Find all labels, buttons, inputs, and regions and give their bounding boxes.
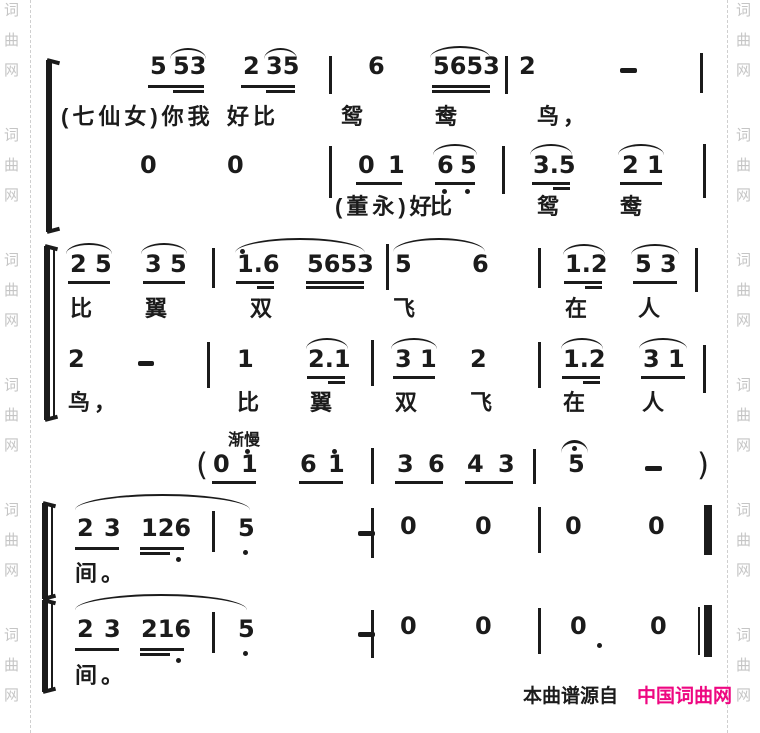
system-brace xyxy=(42,503,48,599)
watermark-divider-left xyxy=(30,0,31,733)
jianpu-note: 3 xyxy=(498,452,515,476)
jianpu-note: 0 xyxy=(475,614,492,638)
watermark-char: 曲 xyxy=(4,158,19,173)
jianpu-note: 1.2 xyxy=(565,252,608,276)
jianpu-note: 1 xyxy=(388,153,405,177)
lyric: (七仙女)你我 xyxy=(61,105,214,129)
jianpu-note: 3 xyxy=(104,617,121,641)
beam-underline xyxy=(432,90,490,93)
final-barline xyxy=(704,605,712,657)
barline xyxy=(538,248,541,288)
barline xyxy=(212,511,215,552)
jianpu-note: 2 xyxy=(519,54,536,78)
jianpu-note: 0 xyxy=(400,514,417,538)
beam-underline xyxy=(140,547,184,550)
barline xyxy=(51,602,53,690)
jianpu-note: 1 xyxy=(420,347,437,371)
jianpu-note: 0 xyxy=(227,153,244,177)
watermark-char: 词 xyxy=(4,378,19,393)
slur xyxy=(393,238,485,252)
jianpu-note: 5 xyxy=(460,153,477,177)
jianpu-note: 2 xyxy=(68,347,85,371)
watermark-char: 词 xyxy=(736,253,751,268)
beam-underline xyxy=(236,281,274,284)
jianpu-note: 216 xyxy=(141,617,191,641)
slur xyxy=(306,338,348,349)
watermark-char: 词 xyxy=(736,128,751,143)
beam-underline xyxy=(620,182,662,185)
jianpu-note: 6 xyxy=(428,452,445,476)
octave-dot xyxy=(465,189,470,194)
jianpu-note: 3.5 xyxy=(533,153,576,177)
lyric: 在 xyxy=(565,297,591,321)
slur xyxy=(631,244,679,255)
octave-dot xyxy=(332,449,337,454)
watermark-char: 网 xyxy=(4,563,19,578)
jianpu-note: 0 xyxy=(648,514,665,538)
beam-underline xyxy=(173,90,204,93)
beam-underline xyxy=(562,376,600,379)
watermark-char: 网 xyxy=(736,438,751,453)
watermark-char: 曲 xyxy=(736,33,751,48)
beam-underline xyxy=(553,187,570,190)
watermark-divider-right xyxy=(727,0,728,733)
barline xyxy=(51,505,53,597)
jianpu-note: 1 xyxy=(328,452,345,476)
barline xyxy=(371,340,374,386)
jianpu-note: 3 xyxy=(145,252,162,276)
octave-dot xyxy=(243,550,248,555)
jianpu-note: 6 xyxy=(368,54,385,78)
jianpu-note: 5 xyxy=(568,452,585,476)
jianpu-note: 1.2 xyxy=(563,347,606,371)
barline xyxy=(695,248,698,292)
jianpu-note: 5 xyxy=(238,617,255,641)
slur xyxy=(433,144,477,155)
beam-underline xyxy=(266,90,295,93)
slur xyxy=(264,48,297,59)
jianpu-note: 6 xyxy=(437,153,454,177)
slur xyxy=(75,594,247,610)
watermark-char: 网 xyxy=(736,63,751,78)
watermark-char: 网 xyxy=(4,188,19,203)
dash-note xyxy=(138,361,154,366)
jianpu-note: 0 xyxy=(570,614,587,638)
jianpu-note: 2 xyxy=(243,54,260,78)
jianpu-note: 6 xyxy=(472,252,489,276)
barline xyxy=(212,612,215,653)
lyric: 鸳 xyxy=(341,105,367,129)
beam-underline xyxy=(212,481,256,484)
lyric: 比 xyxy=(70,297,96,321)
slur xyxy=(563,244,605,255)
jianpu-note: 5 xyxy=(150,54,167,78)
jianpu-note: 1.6 xyxy=(237,252,280,276)
jianpu-note: 1 xyxy=(237,347,254,371)
system-brace xyxy=(44,246,50,420)
watermark-char: 曲 xyxy=(4,33,19,48)
beam-underline xyxy=(641,376,685,379)
slur xyxy=(170,48,206,59)
jianpu-note: 0 xyxy=(650,614,667,638)
beam-underline xyxy=(356,182,402,185)
barline xyxy=(371,448,374,484)
octave-dot xyxy=(597,643,602,648)
slur xyxy=(235,238,365,253)
jianpu-note: 1 xyxy=(241,452,258,476)
lyric: 鸟， xyxy=(537,105,589,129)
beam-underline xyxy=(75,648,119,651)
slur xyxy=(530,144,572,155)
beam-underline xyxy=(306,281,364,284)
jianpu-note: 0 xyxy=(400,614,417,638)
watermark-char: 网 xyxy=(736,313,751,328)
lyric: 翼 xyxy=(310,391,336,415)
watermark-char: 网 xyxy=(736,688,751,703)
beam-underline xyxy=(564,281,602,284)
slur xyxy=(66,243,112,254)
jianpu-note: 0 xyxy=(140,153,157,177)
watermark-char: 词 xyxy=(4,503,19,518)
beam-underline xyxy=(583,381,600,384)
watermark-char: 网 xyxy=(736,188,751,203)
jianpu-note: 0 xyxy=(565,514,582,538)
watermark-char: 曲 xyxy=(4,408,19,423)
watermark-char: 词 xyxy=(4,3,19,18)
jianpu-note: 4 xyxy=(467,452,484,476)
octave-dot xyxy=(245,449,250,454)
beam-underline xyxy=(140,653,170,656)
parenthesis: ( xyxy=(196,450,208,481)
parenthesis: ) xyxy=(697,450,709,481)
slur xyxy=(391,338,437,349)
barline xyxy=(538,507,541,553)
jianpu-note: 3 xyxy=(397,452,414,476)
system-brace xyxy=(46,60,52,232)
beam-underline xyxy=(143,281,185,284)
lyric: 在 xyxy=(563,391,589,415)
beam-underline xyxy=(68,281,110,284)
watermark-char: 曲 xyxy=(736,533,751,548)
dash-note xyxy=(620,68,637,73)
barline xyxy=(53,248,55,418)
watermark-char: 网 xyxy=(4,313,19,328)
watermark-char: 词 xyxy=(4,628,19,643)
lyric: 间。 xyxy=(75,562,127,586)
beam-underline xyxy=(532,182,570,185)
beam-underline xyxy=(328,381,345,384)
jianpu-note: 2 xyxy=(77,617,94,641)
jianpu-note: 2 xyxy=(470,347,487,371)
barline xyxy=(329,56,332,94)
barline xyxy=(703,144,706,198)
barline xyxy=(700,53,703,93)
jianpu-note: 2.1 xyxy=(308,347,351,371)
credit-text: 本曲谱源自 xyxy=(523,686,618,709)
lyric: 鸯 xyxy=(620,195,646,219)
jianpu-note: 2 xyxy=(622,153,639,177)
barline xyxy=(538,342,541,388)
barline xyxy=(212,248,215,288)
slur xyxy=(430,46,490,58)
watermark-char: 曲 xyxy=(736,158,751,173)
octave-dot xyxy=(176,557,181,562)
watermark-char: 曲 xyxy=(4,283,19,298)
slur xyxy=(618,144,664,155)
beam-underline xyxy=(633,281,677,284)
octave-dot xyxy=(176,658,181,663)
beam-underline xyxy=(140,552,170,555)
watermark-char: 词 xyxy=(736,628,751,643)
barline xyxy=(329,146,332,198)
jianpu-note: 2 xyxy=(77,516,94,540)
watermark-char: 曲 xyxy=(736,408,751,423)
watermark-char: 词 xyxy=(4,128,19,143)
beam-underline xyxy=(299,481,343,484)
jianpu-note: 1 xyxy=(647,153,664,177)
jianpu-note: 1 xyxy=(668,347,685,371)
barline xyxy=(371,508,374,558)
jianpu-note: 6 xyxy=(300,452,317,476)
watermark-char: 网 xyxy=(4,688,19,703)
lyric: 比 xyxy=(430,195,456,219)
barline xyxy=(538,608,541,654)
jianpu-note: 3 xyxy=(104,516,121,540)
barline xyxy=(703,345,706,393)
watermark-char: 曲 xyxy=(736,283,751,298)
beam-underline xyxy=(257,286,274,289)
tempo-label: 渐慢 xyxy=(228,433,260,449)
watermark-char: 词 xyxy=(736,3,751,18)
lyric: 双 xyxy=(250,297,276,321)
barline xyxy=(505,56,508,94)
beam-underline xyxy=(395,481,443,484)
beam-underline xyxy=(241,85,295,88)
lyric: 双 xyxy=(395,391,421,415)
beam-underline xyxy=(393,376,435,379)
lyric: 飞 xyxy=(393,297,419,321)
watermark-char: 词 xyxy=(736,503,751,518)
lyric: (董永)好 xyxy=(335,195,436,219)
lyric: 鸟， xyxy=(68,391,120,415)
beam-underline xyxy=(585,286,602,289)
final-barline xyxy=(704,505,712,555)
beam-underline xyxy=(148,85,204,88)
jianpu-note: 0 xyxy=(358,153,375,177)
jianpu-note: 5 xyxy=(238,516,255,540)
lyric: 人 xyxy=(638,297,664,321)
barline xyxy=(533,449,536,484)
beam-underline xyxy=(465,481,513,484)
barline xyxy=(207,342,210,388)
jianpu-note: 0 xyxy=(213,452,230,476)
slur xyxy=(561,338,603,349)
jianpu-note: 5 xyxy=(170,252,187,276)
slur xyxy=(141,243,187,254)
watermark-char: 网 xyxy=(4,63,19,78)
beam-underline xyxy=(306,286,364,289)
barline xyxy=(371,610,374,658)
jianpu-note: 5 xyxy=(635,252,652,276)
jianpu-note: 0 xyxy=(475,514,492,538)
lyric: 好比 xyxy=(227,105,279,129)
jianpu-note: 5 xyxy=(95,252,112,276)
lyric: 人 xyxy=(642,391,668,415)
beam-underline xyxy=(432,85,490,88)
lyric: 飞 xyxy=(470,391,496,415)
jianpu-note: 5 xyxy=(395,252,412,276)
lyric: 翼 xyxy=(145,297,171,321)
watermark-char: 曲 xyxy=(4,533,19,548)
lyric: 鸳 xyxy=(537,195,563,219)
watermark-char: 词 xyxy=(736,378,751,393)
lyric: 间。 xyxy=(75,664,127,688)
beam-underline xyxy=(75,547,119,550)
lyric: 鸯 xyxy=(435,105,461,129)
dash-note xyxy=(645,466,662,471)
slur xyxy=(75,494,250,510)
watermark-char: 词 xyxy=(4,253,19,268)
watermark-char: 曲 xyxy=(736,658,751,673)
beam-underline xyxy=(307,376,345,379)
credit-brand: 中国词曲网 xyxy=(637,686,732,709)
jianpu-note: 3 xyxy=(395,347,412,371)
slur xyxy=(639,338,687,349)
watermark-char: 网 xyxy=(736,563,751,578)
beam-underline xyxy=(140,648,184,651)
barline xyxy=(502,146,505,194)
system-brace xyxy=(42,600,48,692)
barline xyxy=(386,244,389,290)
watermark-char: 曲 xyxy=(4,658,19,673)
sheet-music-scan: 本曲谱源自 中国词曲网 词曲网词曲网词曲网词曲网词曲网词曲网词曲网词曲网词曲网词… xyxy=(0,0,760,733)
lyric: 比 xyxy=(237,391,263,415)
octave-dot xyxy=(243,651,248,656)
jianpu-note: 3 xyxy=(643,347,660,371)
jianpu-note: 5653 xyxy=(307,252,374,276)
jianpu-note: 126 xyxy=(141,516,191,540)
watermark-char: 网 xyxy=(4,438,19,453)
beam-underline xyxy=(435,182,475,185)
jianpu-note: 2 xyxy=(70,252,87,276)
jianpu-note: 3 xyxy=(660,252,677,276)
barline xyxy=(698,607,700,655)
